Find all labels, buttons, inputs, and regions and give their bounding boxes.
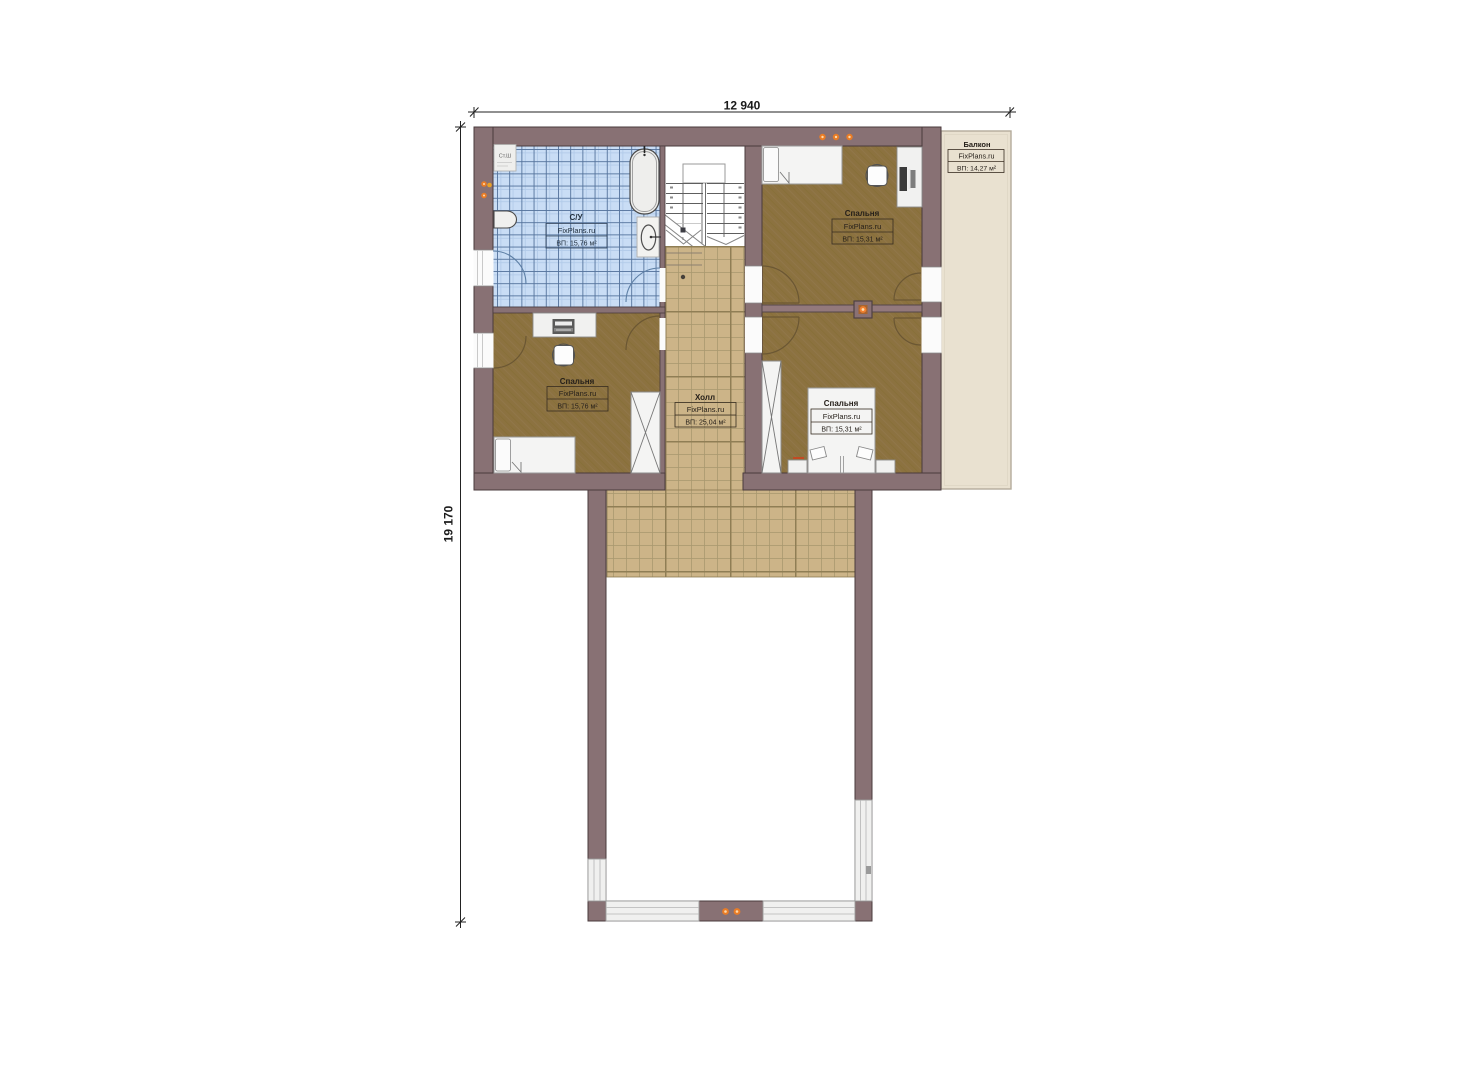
svg-text:FixPlans.ru: FixPlans.ru [959,152,995,161]
svg-text:ВП: 15,31 м²: ВП: 15,31 м² [821,427,862,434]
svg-text:ВП: 15,76 м²: ВП: 15,76 м² [557,404,598,411]
svg-text:FixPlans.ru: FixPlans.ru [558,226,596,235]
svg-text:С/У: С/У [570,213,584,222]
svg-text:FixPlans.ru: FixPlans.ru [844,222,882,231]
svg-text:ВП: 14,27 м²: ВП: 14,27 м² [957,166,997,173]
svg-text:FixPlans.ru: FixPlans.ru [687,405,725,414]
svg-text:ВП: 15,31 м²: ВП: 15,31 м² [842,237,883,244]
svg-text:12 940: 12 940 [724,99,761,113]
svg-text:Балкон: Балкон [963,140,990,149]
svg-text:FixPlans.ru: FixPlans.ru [559,389,597,398]
svg-text:ВП: 15,76 м²: ВП: 15,76 м² [556,241,597,248]
svg-text:19 170: 19 170 [442,505,456,542]
svg-text:Спальня: Спальня [560,377,595,386]
svg-text:Ст.Ш: Ст.Ш [499,154,511,160]
svg-text:FixPlans.ru: FixPlans.ru [823,412,861,421]
svg-text:Спальня: Спальня [824,399,859,408]
svg-text:ВП: 25,04 м²: ВП: 25,04 м² [685,420,726,427]
svg-text:Спальня: Спальня [845,209,880,218]
svg-text:Холл: Холл [695,393,715,402]
